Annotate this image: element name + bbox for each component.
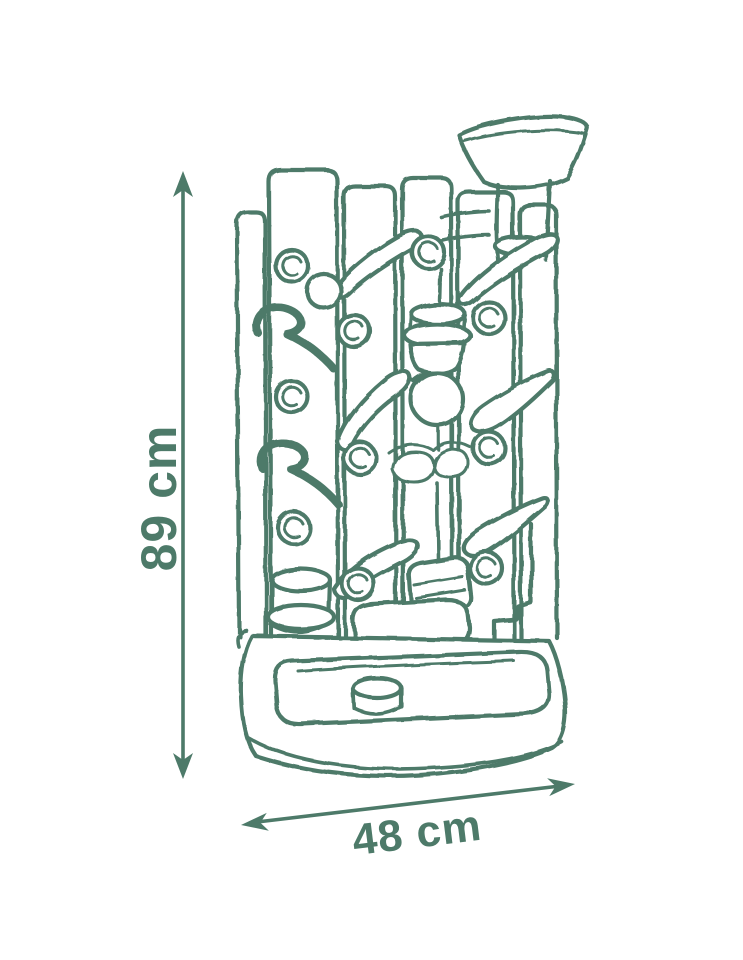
width-dimension-label: 48 cm <box>350 801 485 865</box>
product-dimension-diagram: 89 cm 48 cm <box>0 0 743 960</box>
product-sketch: 89 cm 48 cm <box>0 0 743 960</box>
toy-sketch <box>237 116 587 776</box>
funnel <box>459 116 587 262</box>
bottom-cup <box>268 569 334 632</box>
height-dimension-label: 89 cm <box>131 425 187 572</box>
width-dimension: 48 cm <box>240 775 576 865</box>
arrow-left-icon <box>240 813 269 834</box>
height-dimension: 89 cm <box>131 171 193 779</box>
basin-base <box>237 630 565 776</box>
